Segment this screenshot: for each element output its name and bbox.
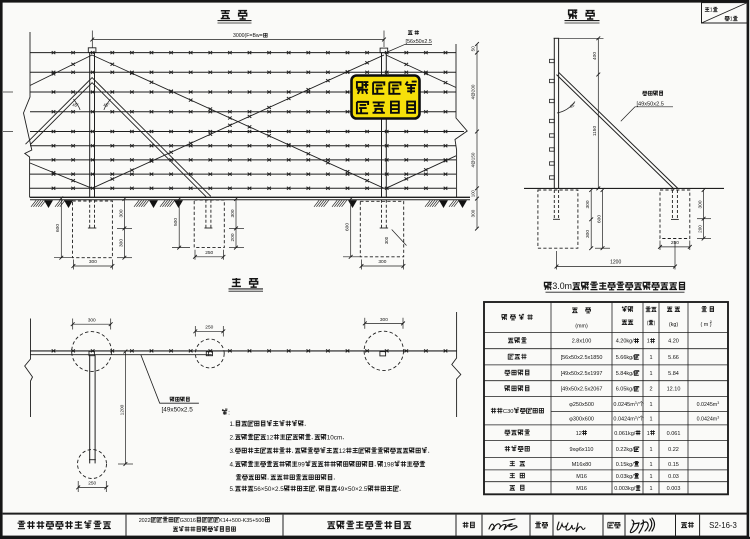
svg-text:1: 1 [650, 402, 653, 408]
svg-text:250: 250 [205, 325, 213, 331]
svg-text:300: 300 [380, 317, 388, 323]
svg-text:2: 2 [650, 387, 653, 393]
svg-text:1: 1 [730, 17, 733, 23]
svg-text:300: 300 [378, 259, 386, 265]
svg-text:99: 99 [298, 461, 306, 468]
svg-text:φ250x500: φ250x500 [569, 402, 594, 408]
svg-text:600: 600 [345, 223, 351, 231]
svg-text:1200: 1200 [119, 404, 125, 415]
svg-text:50: 50 [470, 46, 475, 52]
svg-text:[56x50x2.5x1850: [56x50x2.5x1850 [561, 355, 603, 361]
svg-text:45°: 45° [103, 103, 110, 108]
svg-text:1.: 1. [230, 421, 236, 428]
svg-text:0.0424m: 0.0424m [697, 416, 718, 422]
svg-text:300: 300 [698, 200, 704, 208]
svg-text:200: 200 [698, 225, 703, 233]
svg-text:100: 100 [470, 189, 475, 197]
svg-text:4@200: 4@200 [470, 84, 475, 99]
svg-text:0.15: 0.15 [668, 462, 679, 468]
svg-text:0.22kg/: 0.22kg/ [616, 447, 635, 453]
svg-text:1: 1 [650, 416, 653, 422]
svg-text:M16x80: M16x80 [572, 462, 592, 468]
svg-text:1150: 1150 [592, 126, 598, 137]
svg-text:M16: M16 [576, 474, 587, 480]
svg-text:12: 12 [266, 434, 274, 441]
svg-text:4.: 4. [230, 461, 236, 468]
svg-text:1: 1 [710, 8, 713, 14]
svg-text:0.061: 0.061 [667, 431, 681, 437]
svg-text:4@150: 4@150 [470, 152, 475, 167]
svg-text:2022: 2022 [139, 518, 151, 524]
svg-text:1: 1 [650, 462, 653, 468]
svg-text:49×50×2.5: 49×50×2.5 [337, 486, 368, 493]
svg-text:12.10: 12.10 [667, 387, 681, 393]
svg-text:300: 300 [585, 230, 591, 238]
svg-text:6.05kg/: 6.05kg/ [616, 387, 635, 393]
svg-text:3000(F=Bw=: 3000(F=Bw= [233, 33, 263, 39]
svg-text:500: 500 [173, 218, 179, 226]
svg-text:300: 300 [118, 209, 124, 217]
svg-text:2.8x100: 2.8x100 [572, 339, 592, 345]
svg-text:1: 1 [647, 431, 650, 437]
svg-text:K14+500-K35+500: K14+500-K35+500 [219, 518, 264, 524]
svg-text:45°: 45° [72, 103, 79, 108]
svg-text:φ300x600: φ300x600 [569, 416, 594, 422]
svg-text:): ) [654, 321, 656, 327]
svg-text:600: 600 [55, 224, 61, 232]
svg-text:1: 1 [650, 486, 653, 492]
svg-text:200: 200 [230, 233, 236, 241]
svg-text:C30: C30 [503, 409, 514, 415]
svg-text:[49x50x2.5: [49x50x2.5 [637, 101, 664, 107]
svg-text:300: 300 [470, 209, 475, 217]
svg-text:M16: M16 [576, 486, 587, 492]
svg-text:5.: 5. [230, 486, 236, 493]
svg-text:300: 300 [88, 318, 96, 324]
svg-text:[49x50x2.5x2067: [49x50x2.5x2067 [561, 387, 603, 393]
svg-text:5.84: 5.84 [668, 371, 679, 377]
svg-text:4.20kg/: 4.20kg/ [616, 339, 635, 345]
svg-text:/个: /个 [637, 401, 645, 408]
svg-text:56×50×2.5: 56×50×2.5 [254, 486, 285, 493]
svg-text:(mm): (mm) [575, 324, 588, 330]
svg-text:1: 1 [650, 447, 653, 453]
svg-text:9xφ6x110: 9xφ6x110 [570, 447, 594, 453]
svg-text:300: 300 [384, 236, 389, 244]
svg-text:1: 1 [647, 339, 650, 345]
svg-text:(kg): (kg) [669, 322, 678, 328]
svg-text:3.: 3. [230, 448, 236, 455]
svg-text:400: 400 [592, 52, 598, 60]
svg-text:300: 300 [118, 239, 124, 247]
svg-text:10cm: 10cm [327, 434, 342, 441]
svg-text:0.22: 0.22 [668, 447, 679, 453]
svg-text:0.03: 0.03 [668, 474, 679, 480]
svg-text:198: 198 [384, 461, 395, 468]
svg-text:0.15kg/: 0.15kg/ [616, 462, 635, 468]
svg-text:/个: /个 [637, 415, 645, 422]
svg-text:1: 1 [650, 474, 653, 480]
svg-text:0.03kg/: 0.03kg/ [616, 474, 635, 480]
svg-text:300: 300 [585, 200, 591, 208]
svg-text:S2-16-3: S2-16-3 [709, 521, 737, 530]
svg-text:12: 12 [576, 431, 582, 437]
svg-text:1: 1 [650, 355, 653, 361]
svg-text:0.061kg/: 0.061kg/ [614, 431, 636, 437]
svg-text:[49x50x2.5: [49x50x2.5 [162, 406, 194, 413]
svg-text:1200: 1200 [610, 260, 621, 266]
svg-text:0.0245m: 0.0245m [613, 402, 635, 408]
svg-text:0.0245m: 0.0245m [697, 402, 718, 408]
svg-text:5.66: 5.66 [668, 355, 679, 361]
svg-text:600: 600 [596, 215, 602, 223]
svg-text:1: 1 [650, 371, 653, 377]
svg-text:4.20: 4.20 [668, 339, 679, 345]
svg-text:3: 3 [717, 401, 719, 405]
svg-text:3: 3 [717, 415, 719, 419]
svg-text:0.003kg/: 0.003kg/ [614, 486, 636, 492]
svg-text:2.: 2. [230, 434, 236, 441]
svg-text::: : [228, 410, 230, 417]
svg-text:G3016: G3016 [180, 518, 196, 524]
svg-text:3: 3 [710, 320, 712, 324]
svg-text:5.84kg/: 5.84kg/ [616, 371, 635, 377]
svg-text:0.0424m: 0.0424m [613, 416, 635, 422]
svg-text:[49x50x2.5x1997: [49x50x2.5x1997 [561, 371, 603, 377]
svg-text:250: 250 [88, 481, 96, 487]
svg-text:(: ( [647, 321, 649, 327]
svg-text:300: 300 [230, 209, 236, 217]
svg-text:5.66kg/: 5.66kg/ [616, 355, 635, 361]
svg-text:3.0m: 3.0m [552, 281, 572, 291]
svg-text:250: 250 [205, 250, 213, 256]
svg-text:0.003: 0.003 [667, 486, 681, 492]
svg-text:12: 12 [339, 448, 347, 455]
svg-text:300: 300 [89, 259, 97, 265]
